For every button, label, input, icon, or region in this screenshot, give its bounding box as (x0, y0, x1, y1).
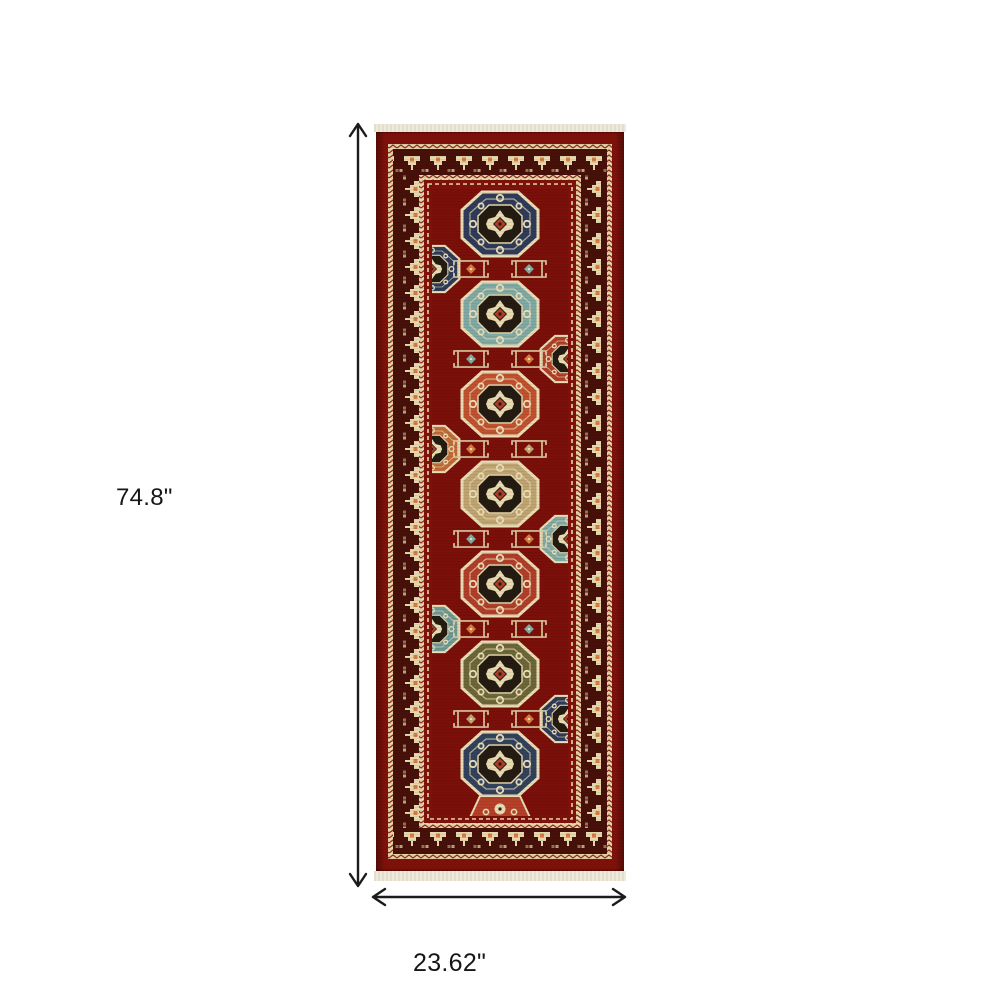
height-dimension-arrow (346, 120, 370, 890)
rug-product-image (373, 124, 627, 881)
width-dimension-arrow (368, 886, 630, 908)
rug-top-fringe (374, 124, 626, 132)
height-dimension-label: 74.8" (116, 484, 173, 512)
width-dimension-label: 23.62" (413, 949, 486, 978)
rug-body (376, 132, 624, 871)
product-dimension-canvas: 74.8" 23.62" (0, 0, 1000, 1000)
rug-bottom-fringe (374, 871, 626, 881)
